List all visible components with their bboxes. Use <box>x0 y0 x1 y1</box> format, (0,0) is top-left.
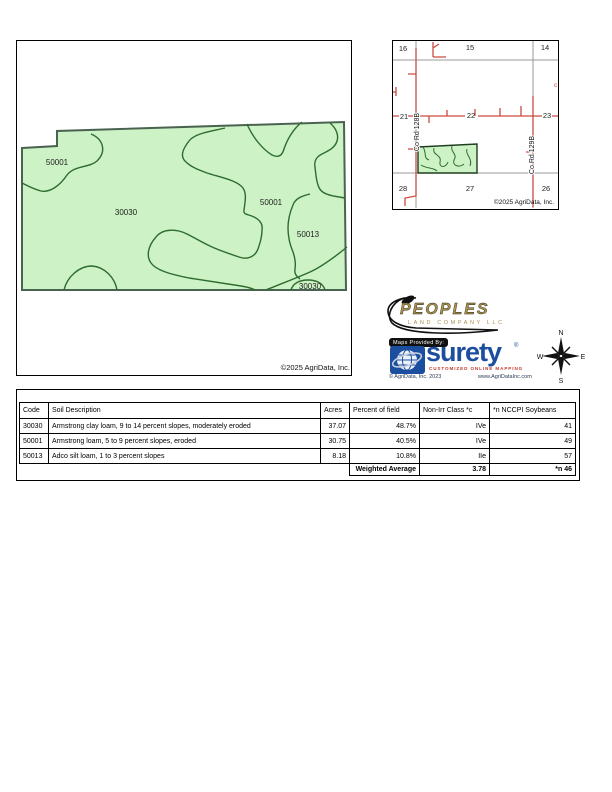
soil-zone-label: 50001 <box>260 198 283 207</box>
header-percent: Percent of field <box>350 403 420 419</box>
locator-map: 16 15 14 21 22 23 28 27 26 Co Rd 128B Co… <box>392 40 559 210</box>
map-copyright: ©2025 AgriData, Inc. <box>281 363 350 372</box>
section-number: 15 <box>466 43 474 52</box>
header-code: Code <box>20 403 49 419</box>
soil-map-drawing: 50001 30030 50001 50013 30030 ©2025 Agri… <box>17 41 351 375</box>
cell-acres: 30.75 <box>321 434 350 449</box>
cell-non-irr: IVe <box>420 419 490 434</box>
cell-description: Armstrong loam, 5 to 9 percent slopes, e… <box>49 434 321 449</box>
header-non-irr: Non-Irr Class *c <box>420 403 490 419</box>
field-boundary <box>22 122 346 290</box>
compass-e-label: E <box>581 354 586 361</box>
compass-n-label: N <box>558 330 563 337</box>
section-number: 14 <box>541 43 549 52</box>
section-number: 21 <box>400 112 408 121</box>
section-number: 23 <box>543 111 551 120</box>
surety-wordmark: surety <box>426 339 501 366</box>
table-row: 50013 Adco silt loam, 1 to 3 percent slo… <box>20 449 576 464</box>
cell-nccpi: 57 <box>490 449 576 464</box>
compass-w-label: W <box>537 354 544 361</box>
locator-map-drawing: 16 15 14 21 22 23 28 27 26 Co Rd 128B Co… <box>393 41 558 208</box>
table-row: 50001 Armstrong loam, 5 to 9 percent slo… <box>20 434 576 449</box>
wavg-spacer <box>20 464 350 476</box>
registered-mark: ® <box>514 343 518 349</box>
cell-non-irr: IVe <box>420 434 490 449</box>
surety-logo-block: Maps Provided By: surety ® CUSTOMIZED ON… <box>388 337 538 383</box>
peoples-logo: PEOPLES LAND COMPANY LLC <box>386 294 516 334</box>
globe-icon <box>390 346 425 374</box>
cell-non-irr: IIe <box>420 449 490 464</box>
wavg-label: Weighted Average <box>350 464 420 476</box>
cell-description: Adco silt loam, 1 to 3 percent slopes <box>49 449 321 464</box>
soil-zone-label: 30030 <box>115 208 138 217</box>
cell-description: Armstrong clay loam, 9 to 14 percent slo… <box>49 419 321 434</box>
weighted-average-row: Weighted Average 3.78 *n 46 <box>20 464 576 476</box>
wavg-non-irr: 3.78 <box>420 464 490 476</box>
wavg-nccpi: *n 46 <box>490 464 576 476</box>
peoples-wordmark: PEOPLES <box>400 301 490 319</box>
compass-rose-icon: N S E W <box>537 326 587 386</box>
cell-code: 50001 <box>20 434 49 449</box>
soil-zone-label: 50013 <box>297 230 320 239</box>
road-label: Co Rd 129B <box>529 136 536 174</box>
section-number: 27 <box>466 184 474 193</box>
surety-copyright: © AgriData, Inc. 2023 <box>389 374 441 380</box>
surety-website: www.AgriDataInc.com <box>478 374 532 380</box>
peoples-subtitle: LAND COMPANY LLC <box>408 320 505 326</box>
cell-acres: 8.18 <box>321 449 350 464</box>
cell-percent: 10.8% <box>350 449 420 464</box>
cell-percent: 40.5% <box>350 434 420 449</box>
cell-code: 30030 <box>20 419 49 434</box>
cell-nccpi: 49 <box>490 434 576 449</box>
soil-table: Code Soil Description Acres Percent of f… <box>19 402 576 476</box>
section-number: 22 <box>467 111 475 120</box>
table-row: 30030 Armstrong clay loam, 9 to 14 perce… <box>20 419 576 434</box>
main-soil-map: 50001 30030 50001 50013 30030 ©2025 Agri… <box>16 40 352 376</box>
soil-zone-label: 30030 <box>299 282 322 291</box>
section-number: 26 <box>542 184 550 193</box>
header-acres: Acres <box>321 403 350 419</box>
cell-code: 50013 <box>20 449 49 464</box>
soil-table-container: Code Soil Description Acres Percent of f… <box>16 389 580 481</box>
header-nccpi: *n NCCPI Soybeans <box>490 403 576 419</box>
header-description: Soil Description <box>49 403 321 419</box>
section-number: 16 <box>399 44 407 53</box>
surety-tagline: CUSTOMIZED ONLINE MAPPING <box>429 366 523 371</box>
table-header-row: Code Soil Description Acres Percent of f… <box>20 403 576 419</box>
cell-nccpi: 41 <box>490 419 576 434</box>
soil-zone-label: 50001 <box>46 158 69 167</box>
locator-copyright: ©2025 AgriData, Inc. <box>494 198 554 206</box>
cell-acres: 37.07 <box>321 419 350 434</box>
soil-report-page: 50001 30030 50001 50013 30030 ©2025 Agri… <box>0 0 612 792</box>
road-label: Co Rd 128B <box>414 113 421 151</box>
section-number: 28 <box>399 184 407 193</box>
compass-s-label: S <box>559 378 564 385</box>
cell-percent: 48.7% <box>350 419 420 434</box>
edge-road-label: c <box>554 82 558 89</box>
